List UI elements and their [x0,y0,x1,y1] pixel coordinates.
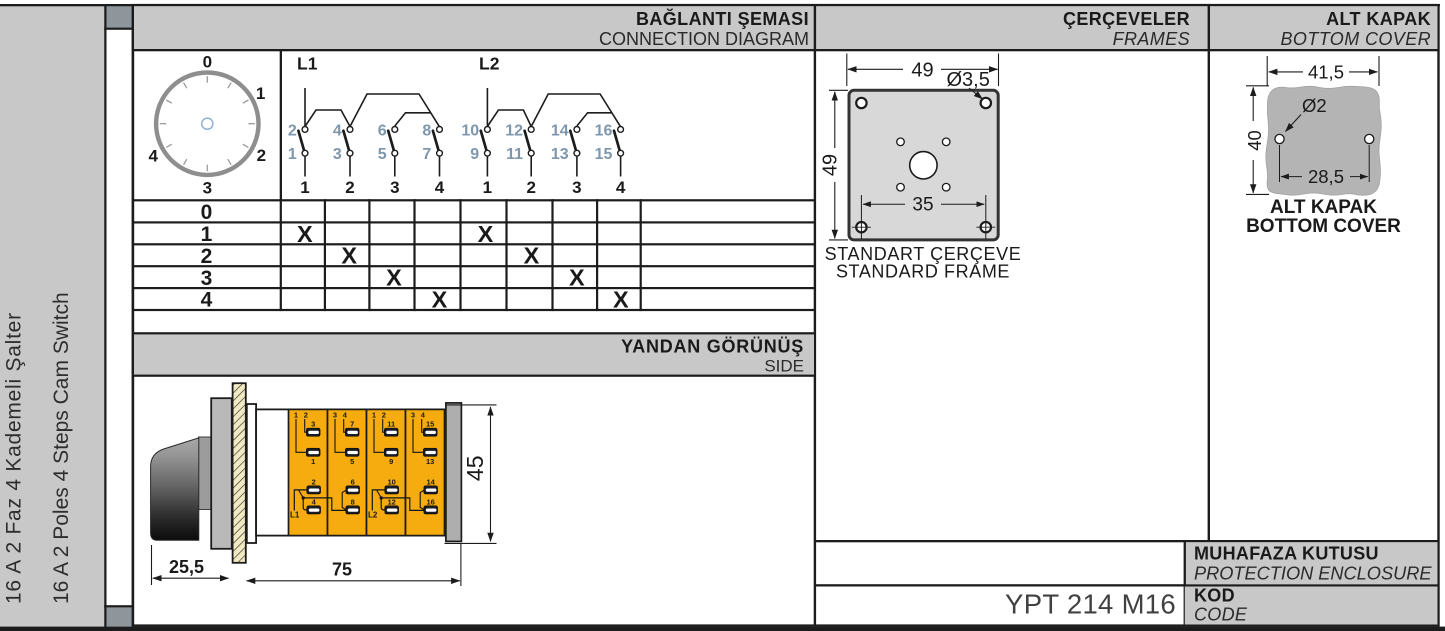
svg-text:3: 3 [333,146,342,163]
svg-text:6: 6 [378,122,387,139]
svg-text:3: 3 [201,267,213,290]
svg-text:STANDARD FRAME: STANDARD FRAME [836,262,1010,282]
svg-text:BOTTOM COVER: BOTTOM COVER [1281,29,1431,49]
svg-text:2: 2 [201,245,213,268]
svg-text:16: 16 [427,497,435,506]
svg-text:ALT KAPAK: ALT KAPAK [1326,9,1431,29]
svg-text:1: 1 [300,178,309,197]
svg-text:2: 2 [288,122,297,139]
svg-text:3: 3 [333,411,337,420]
svg-text:3: 3 [311,420,315,429]
svg-text:10: 10 [388,477,396,486]
svg-text:45: 45 [462,456,488,482]
svg-text:3: 3 [390,178,399,197]
svg-text:28,5: 28,5 [1308,166,1344,187]
svg-text:10: 10 [461,122,479,139]
svg-text:4: 4 [333,122,342,139]
svg-text:5: 5 [350,457,354,466]
svg-text:1: 1 [483,178,492,197]
svg-text:35: 35 [912,195,933,216]
svg-text:L2: L2 [368,511,378,520]
svg-text:49: 49 [820,154,842,176]
svg-text:KOD: KOD [1194,586,1235,606]
svg-text:11: 11 [387,420,395,429]
svg-text:X: X [432,286,448,312]
svg-text:1: 1 [294,411,298,420]
svg-text:2: 2 [312,477,316,486]
svg-text:SIDE: SIDE [764,357,804,376]
svg-text:1: 1 [256,84,265,103]
svg-text:14: 14 [427,477,436,486]
svg-text:2: 2 [257,146,266,165]
svg-text:2: 2 [304,411,308,420]
svg-text:L2: L2 [479,54,500,74]
svg-text:YPT 214 M16: YPT 214 M16 [1005,589,1176,620]
svg-text:X: X [478,221,494,247]
svg-text:4: 4 [148,146,158,165]
svg-text:4: 4 [201,289,213,312]
svg-text:4: 4 [435,178,445,197]
svg-text:X: X [386,265,402,291]
svg-text:1: 1 [372,411,376,420]
svg-text:25,5: 25,5 [169,557,204,577]
svg-text:CONNECTION DIAGRAM: CONNECTION DIAGRAM [599,29,809,49]
svg-text:8: 8 [351,497,355,506]
svg-text:16 A 2 Faz 4 Kademeli Şalter: 16 A 2 Faz 4 Kademeli Şalter [2,312,25,604]
svg-text:16: 16 [595,122,613,139]
svg-text:75: 75 [332,560,352,580]
svg-text:X: X [341,243,357,269]
svg-text:X: X [524,243,540,269]
svg-text:1: 1 [311,457,315,466]
svg-text:16 A 2 Poles 4 Steps Cam Switc: 16 A 2 Poles 4 Steps Cam Switch [50,292,73,604]
svg-text:9: 9 [470,146,479,163]
svg-text:PROTECTION ENCLOSURE: PROTECTION ENCLOSURE [1194,564,1432,584]
svg-text:MUHAFAZA KUTUSU: MUHAFAZA KUTUSU [1194,544,1379,564]
svg-text:40: 40 [1244,130,1265,151]
svg-text:0: 0 [203,53,212,72]
svg-text:7: 7 [422,146,431,163]
svg-text:1: 1 [201,223,213,246]
svg-text:BOTTOM COVER: BOTTOM COVER [1246,216,1401,237]
svg-text:15: 15 [426,420,434,429]
svg-text:13: 13 [551,146,569,163]
svg-text:2: 2 [526,178,535,197]
svg-text:8: 8 [422,122,431,139]
svg-text:13: 13 [426,457,434,466]
svg-text:BAĞLANTI ŞEMASI: BAĞLANTI ŞEMASI [636,8,809,29]
svg-text:9: 9 [389,457,393,466]
svg-text:Ø3,5: Ø3,5 [947,69,990,91]
svg-text:ALT KAPAK: ALT KAPAK [1270,197,1377,218]
svg-text:6: 6 [351,477,355,486]
svg-text:14: 14 [551,122,569,139]
svg-text:0: 0 [201,201,213,224]
svg-text:4: 4 [616,178,626,197]
svg-text:2: 2 [382,411,386,420]
svg-text:1: 1 [288,146,297,163]
svg-text:CODE: CODE [1194,605,1248,625]
svg-text:X: X [569,265,585,291]
svg-text:L1: L1 [290,511,300,520]
svg-text:11: 11 [506,146,523,163]
svg-text:ÇERÇEVELER: ÇERÇEVELER [1063,9,1190,29]
svg-text:YANDAN GÖRÜNÜŞ: YANDAN GÖRÜNÜŞ [621,337,804,357]
svg-text:12: 12 [388,497,396,506]
svg-text:5: 5 [378,146,387,163]
svg-text:49: 49 [911,59,933,81]
svg-text:15: 15 [595,146,613,163]
svg-text:12: 12 [505,122,523,139]
svg-text:2: 2 [345,178,354,197]
svg-text:3: 3 [411,411,415,420]
svg-text:7: 7 [350,420,354,429]
svg-text:3: 3 [572,178,581,197]
svg-text:Ø2: Ø2 [1302,95,1327,116]
svg-text:X: X [297,221,313,247]
svg-text:3: 3 [203,179,212,198]
svg-text:FRAMES: FRAMES [1113,29,1190,49]
svg-text:41,5: 41,5 [1308,61,1344,82]
svg-text:X: X [613,286,629,312]
svg-text:L1: L1 [297,54,318,74]
